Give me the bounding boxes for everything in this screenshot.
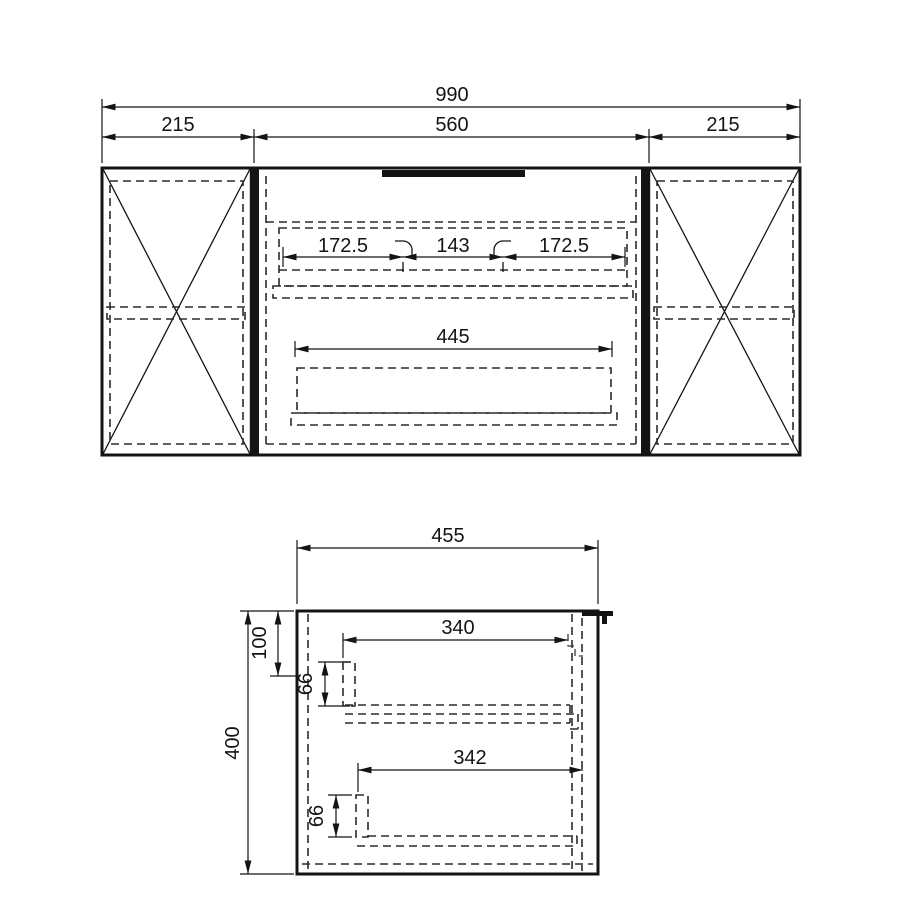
dim-label-340: 340 — [441, 617, 474, 639]
dim-label-445: 445 — [436, 326, 469, 348]
dim-label-left-215: 215 — [161, 114, 194, 136]
dim-label-990: 990 — [435, 84, 468, 106]
dim-label-455: 455 — [431, 525, 464, 547]
handle-groove — [382, 170, 525, 177]
left-side-panel — [251, 168, 259, 455]
dim-label-172-5-right: 172.5 — [539, 235, 589, 257]
dim-label-143: 143 — [436, 235, 469, 257]
dim-label-right-215: 215 — [706, 114, 739, 136]
dim-label-400: 400 — [222, 726, 244, 759]
dim-label-172-5-left: 172.5 — [318, 235, 368, 257]
dim-label-66-upper: 66 — [295, 673, 317, 695]
right-side-panel — [641, 168, 649, 455]
dim-label-560: 560 — [435, 114, 468, 136]
dim-label-66-lower: 66 — [306, 805, 328, 827]
dim-label-342: 342 — [453, 747, 486, 769]
technical-drawing: 990 215 560 215 — [0, 0, 900, 900]
dim-label-100: 100 — [249, 626, 271, 659]
